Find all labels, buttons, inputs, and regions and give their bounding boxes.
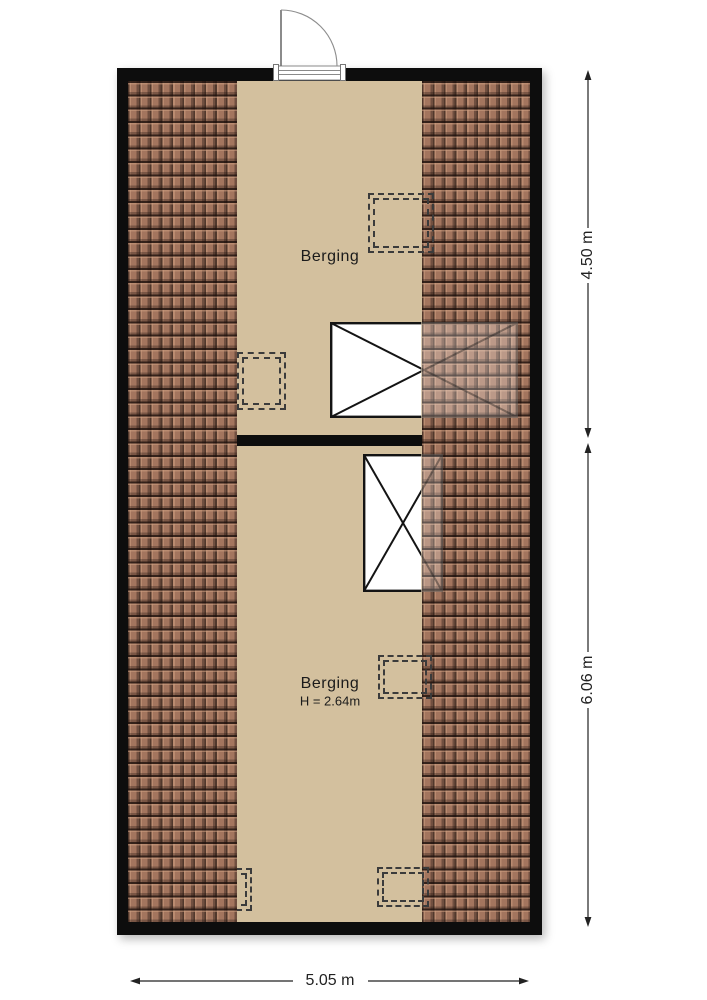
dashed-opening-mid-left: [237, 352, 286, 410]
dimension-label-6-06: 6.06 m: [579, 656, 597, 705]
room-label-top: Berging: [301, 248, 360, 266]
dashed-opening-top-right: [368, 193, 434, 253]
dimension-label-5-05: 5.05 m: [306, 972, 355, 990]
room-height-label: H = 2.64m: [300, 694, 360, 709]
roof-window-upper: [330, 322, 518, 418]
room-label-bottom: Berging: [301, 675, 360, 693]
roof-tiles-left: [128, 81, 237, 922]
divider-wall: [237, 435, 422, 446]
dashed-opening-bottom-right: [377, 867, 429, 907]
floorplan-canvas: Berging Berging H = 2.64m 4.50 m 6.06 m …: [0, 0, 707, 1000]
dashed-opening-mid-right: [378, 655, 432, 699]
door-swing: [281, 10, 337, 66]
dimension-label-4-50: 4.50 m: [579, 231, 597, 280]
roof-window-lower: [363, 454, 443, 592]
